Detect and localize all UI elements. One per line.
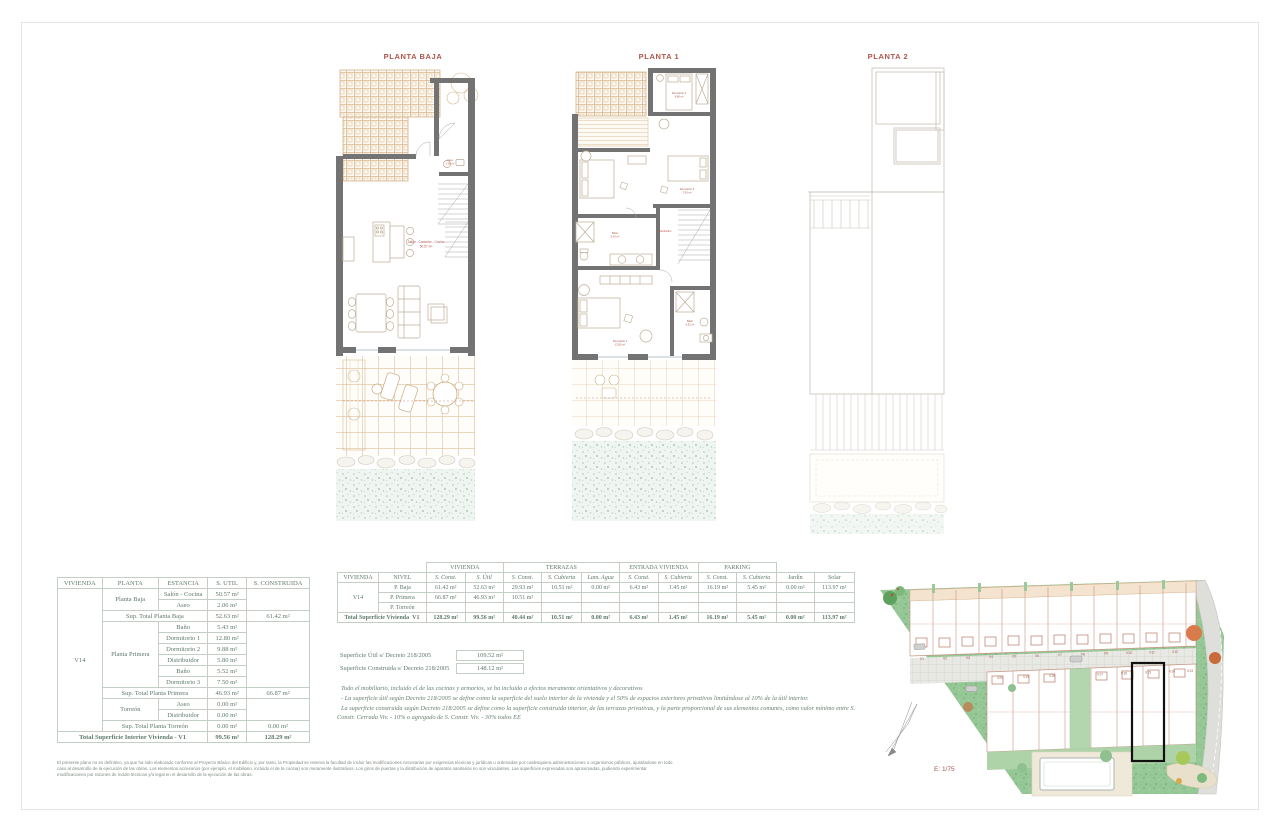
table-cell — [503, 603, 542, 613]
railing — [810, 196, 870, 228]
pergola-slats — [810, 394, 944, 450]
svg-text:V15: V15 — [1145, 671, 1151, 675]
table-cell: Dormitorio 2 — [159, 644, 208, 655]
svg-text:V5: V5 — [1012, 655, 1016, 659]
column-header: S. UTIL — [208, 578, 247, 589]
svg-text:V6: V6 — [1035, 654, 1039, 658]
superficie-construida-value: 148.12 m² — [456, 663, 524, 674]
aseo-area-label: 2.06 m² — [446, 161, 455, 165]
table-cell — [737, 603, 777, 613]
table-cell: 6.43 m² — [620, 583, 659, 593]
roof-outline — [808, 68, 944, 394]
table-cell — [582, 603, 620, 613]
superficie-construida-row: Superficie Construida s/ Decreto 218/200… — [340, 663, 524, 674]
table-cell: 0.00 m² — [777, 613, 815, 623]
distribuidor-label: Distribuidor — [658, 229, 671, 233]
svg-text:V2: V2 — [943, 657, 947, 661]
vivienda-cell: V14 — [338, 583, 379, 613]
bedroom-bottom — [578, 276, 652, 342]
column-header: Lam. Agua — [582, 573, 620, 583]
svg-text:V1: V1 — [920, 657, 924, 661]
houses-top-row — [910, 580, 1196, 656]
disclaimer-text: El presente plano no es definitivo, ya q… — [57, 760, 675, 778]
table-cell: Planta Baja — [102, 589, 159, 611]
table-cell: Sup. Total Planta Baja — [102, 611, 208, 622]
table-cell: 52.63 m² — [465, 583, 503, 593]
table-cell: 10.51 m² — [542, 613, 582, 623]
terrace — [336, 356, 475, 456]
summary-areas-table: VIVIENDA TERRAZAS ENTRADA VIVIENDA PARKI… — [337, 562, 855, 623]
table-cell: 5.45 m² — [737, 613, 777, 623]
plan-sheet: PLANTA BAJA PLANTA 1 PLANTA 2 — [0, 0, 1280, 831]
table-cell: Baño — [159, 622, 208, 633]
column-header: S. Cubierta — [737, 573, 777, 583]
bathroom — [576, 222, 652, 265]
table-cell — [247, 699, 310, 721]
table-cell: 61.42 m² — [247, 611, 310, 622]
note-line: - La superficie útil según Decreto 218/2… — [337, 694, 861, 703]
bedroom-mid-right — [659, 119, 708, 193]
table-cell: 5.52 m² — [208, 666, 247, 677]
table-cell — [814, 603, 854, 613]
table-cell: Planta Primera — [102, 622, 159, 688]
bano-area: 5.43 m² — [611, 235, 620, 239]
table-cell — [465, 603, 503, 613]
svg-text:V10: V10 — [1126, 651, 1132, 655]
column-header: S. Const. — [620, 573, 659, 583]
table-cell: Sup. Total Planta Torreón — [102, 721, 208, 732]
planta-baja-title: PLANTA BAJA — [358, 52, 468, 61]
kitchen — [343, 222, 414, 262]
dorm3-area: 7.50 m² — [683, 191, 692, 195]
table-cell: Dormitorio 1 — [159, 633, 208, 644]
table-cell: 1.45 m² — [658, 613, 698, 623]
table-cell: Sup. Total Planta Primera — [102, 688, 208, 699]
table-cell: 128.29 m² — [426, 613, 465, 623]
table-cell — [777, 593, 815, 603]
table-cell — [814, 593, 854, 603]
column-header: Jardín — [777, 573, 815, 583]
terrace-pergola — [576, 72, 648, 146]
table-cell — [247, 589, 310, 611]
dorm3-label: Dormitorio 3 — [680, 187, 695, 191]
svg-text:V19: V19 — [1023, 675, 1029, 679]
svg-text:V9: V9 — [1104, 652, 1108, 656]
svg-text:V4: V4 — [989, 655, 993, 659]
superficie-util-label: Superficie Útil s/ Decreto 218/2005 — [340, 652, 456, 659]
table-cell: 2.06 m² — [208, 600, 247, 611]
table-cell: 5.80 m² — [208, 655, 247, 666]
svg-text:V12: V12 — [1172, 650, 1178, 654]
table-cell — [698, 593, 737, 603]
column-header: VIVIENDA — [58, 578, 103, 589]
table-row: V14 Planta Baja Salón - Cocina 50.57 m² — [58, 589, 310, 600]
svg-text:V20: V20 — [997, 676, 1003, 680]
column-header: PLANTA — [102, 578, 159, 589]
table-cell: 40.44 m² — [503, 613, 542, 623]
group-header: PARKING — [698, 563, 776, 573]
aseo-label: Aseo — [447, 158, 453, 162]
dorm1-label: Dormitorio 1 — [613, 339, 628, 343]
vivienda-cell: V14 — [58, 589, 103, 732]
compass-icon — [886, 702, 917, 756]
planta-baja-floorplan: Salón - Comedor - Cocina 50.57 m² Aseo 2… — [330, 64, 482, 522]
table-cell: 0.00 m² — [582, 613, 620, 623]
table-cell: 0.00 m² — [208, 699, 247, 710]
legal-notes: Todo el mobiliario, incluido el de las c… — [337, 684, 861, 723]
column-header: ESTANCIA — [159, 578, 208, 589]
bathroom-2 — [676, 292, 712, 342]
group-header: TERRAZAS — [503, 563, 619, 573]
table-cell — [247, 622, 310, 688]
column-header: VIVIENDA — [338, 573, 379, 583]
table-cell: 12.80 m² — [208, 633, 247, 644]
table-cell: 113.97 m² — [814, 583, 854, 593]
table-cell — [658, 603, 698, 613]
table-cell: Total Superficie Vivienda V1 — [338, 613, 427, 623]
column-header: S. Cubierta — [658, 573, 698, 583]
table-cell: 9.88 m² — [208, 644, 247, 655]
table-cell: 99.56 m² — [208, 732, 247, 743]
table-cell: P. Primera — [378, 593, 426, 603]
lower-terrace — [810, 454, 947, 534]
table-cell — [737, 593, 777, 603]
table-cell — [814, 563, 854, 573]
superficie-construida-label: Superficie Construida s/ Decreto 218/200… — [340, 665, 456, 672]
dorm2-area: 9.88 m² — [675, 95, 684, 99]
table-cell: 113.97 m² — [814, 613, 854, 623]
superficie-util-row: Superficie Útil s/ Decreto 218/2005 109.… — [340, 650, 524, 661]
dining-living — [348, 286, 447, 338]
room-area-label: 50.57 m² — [420, 245, 433, 249]
table-cell: Salón - Cocina — [159, 589, 208, 600]
table-cell: 66.87 m² — [247, 688, 310, 699]
column-header: S. CONSTRUIDA — [247, 578, 310, 589]
table-cell: Baño — [159, 666, 208, 677]
table-cell: 29.93 m² — [503, 583, 542, 593]
table-cell: P. Torreón — [378, 603, 426, 613]
decreto-surface-block: Superficie Útil s/ Decreto 218/2005 109.… — [340, 650, 524, 676]
table-cell — [698, 603, 737, 613]
table-cell — [620, 603, 659, 613]
table-cell: 61.42 m² — [426, 583, 465, 593]
column-header: S. Útil — [465, 573, 503, 583]
svg-text:V14: V14 — [1169, 670, 1175, 674]
note-line: La superficie construida según Decreto 2… — [337, 704, 861, 722]
dorm1-area: 12.80 m² — [615, 343, 625, 347]
bano2-label: Baño — [687, 319, 694, 323]
table-cell: 5.43 m² — [208, 622, 247, 633]
table-cell: 0.00 m² — [777, 583, 815, 593]
bano2-area: 5.52 m² — [686, 323, 695, 327]
table-cell: Distribuidor — [159, 655, 208, 666]
bedroom-mid-left — [580, 151, 646, 198]
table-cell: 5.45 m² — [737, 583, 777, 593]
room-label: Salón - Comedor - Cocina — [408, 240, 445, 244]
site-plan: E: 1/75 V1 V2 V3 V4 V5 V6 V7 V8 V9 V10 V… — [872, 576, 1232, 798]
svg-text:V16: V16 — [1121, 672, 1127, 676]
total-row: Total Superficie Vivienda V1 128.29 m² 9… — [338, 613, 855, 623]
svg-text:V13: V13 — [1187, 669, 1193, 673]
table-cell — [620, 593, 659, 603]
table-cell: 10.51 m² — [503, 593, 542, 603]
group-header: VIVIENDA — [426, 563, 503, 573]
column-header: S. Const. — [503, 573, 542, 583]
svg-text:V17: V17 — [1097, 673, 1103, 677]
scale-label: E: 1/75 — [934, 766, 955, 773]
table-cell: 7.50 m² — [208, 677, 247, 688]
table-cell: 0.00 m² — [208, 710, 247, 721]
table-cell: P. Baja — [378, 583, 426, 593]
planta-1-floorplan: Dormitorio 2 9.88 m² Dormitorio 3 7.50 m… — [570, 64, 718, 522]
table-cell: 52.63 m² — [208, 611, 247, 622]
column-header: S. Cubierta — [542, 573, 582, 583]
dorm2-label: Dormitorio 2 — [672, 91, 687, 95]
svg-text:V3: V3 — [966, 656, 970, 660]
table-cell — [542, 593, 582, 603]
table-cell: 99.56 m² — [465, 613, 503, 623]
doors-stairs — [416, 123, 468, 257]
planta-2-title: PLANTA 2 — [833, 52, 943, 61]
subheader-row: VIVIENDA NIVEL S. Const. S. Útil S. Cons… — [338, 573, 855, 583]
table-cell: 50.57 m² — [208, 589, 247, 600]
table-cell — [658, 593, 698, 603]
table-cell: 46.93 m² — [208, 688, 247, 699]
table-cell — [426, 603, 465, 613]
column-header: NIVEL — [378, 573, 426, 583]
interior-areas-table: VIVIENDA PLANTA ESTANCIA S. UTIL S. CONS… — [57, 577, 310, 743]
superficie-util-value: 109.52 m² — [456, 650, 524, 661]
table-cell: Dormitorio 3 — [159, 677, 208, 688]
table-cell: 10.51 m² — [542, 583, 582, 593]
svg-text:V8: V8 — [1081, 653, 1085, 657]
table-cell: Total Superficie Interior Vivienda - V1 — [58, 732, 208, 743]
table-cell: 16.19 m² — [698, 583, 737, 593]
table-cell: 16.19 m² — [698, 613, 737, 623]
table-cell: 0.00 m² — [208, 721, 247, 732]
table-cell — [777, 563, 815, 573]
svg-text:V18: V18 — [1049, 674, 1055, 678]
table-row: V14 P. Baja 61.42 m² 52.63 m² 29.93 m² 1… — [338, 583, 855, 593]
svg-text:V11: V11 — [1149, 651, 1155, 655]
garden — [336, 456, 475, 522]
stairs — [626, 208, 710, 282]
table-cell: Torreón — [102, 699, 159, 721]
planta-1-title: PLANTA 1 — [604, 52, 714, 61]
table-cell — [542, 603, 582, 613]
table-cell — [338, 563, 427, 573]
table-cell: 128.29 m² — [247, 732, 310, 743]
table-cell: 6.43 m² — [620, 613, 659, 623]
table-cell: 66.87 m² — [426, 593, 465, 603]
table-cell: 0.00 m² — [582, 583, 620, 593]
note-line: Todo el mobiliario, incluido el de las c… — [337, 684, 861, 693]
table-cell: Aseo — [159, 699, 208, 710]
table-cell — [582, 593, 620, 603]
column-header: S. Const. — [426, 573, 465, 583]
table-cell: Distribuidor — [159, 710, 208, 721]
column-header: Solar — [814, 573, 854, 583]
terrace-bottom — [572, 360, 716, 521]
total-row: Total Superficie Interior Vivienda - V1 … — [58, 732, 310, 743]
table-cell: 46.93 m² — [465, 593, 503, 603]
table-cell: Aseo — [159, 600, 208, 611]
group-header-row: VIVIENDA TERRAZAS ENTRADA VIVIENDA PARKI… — [338, 563, 855, 573]
table-header-row: VIVIENDA PLANTA ESTANCIA S. UTIL S. CONS… — [58, 578, 310, 589]
bano-label: Baño — [612, 231, 619, 235]
planta-2-floorplan — [808, 62, 948, 534]
group-header: ENTRADA VIVIENDA — [620, 563, 698, 573]
column-header: S. Const. — [698, 573, 737, 583]
table-cell: 1.45 m² — [658, 583, 698, 593]
table-row: P. Torreón — [338, 603, 855, 613]
pool-area — [1032, 752, 1132, 796]
table-cell — [777, 603, 815, 613]
table-row: P. Primera 66.87 m² 46.93 m² 10.51 m² — [338, 593, 855, 603]
svg-text:V7: V7 — [1058, 653, 1062, 657]
table-cell: 0.00 m² — [247, 721, 310, 732]
